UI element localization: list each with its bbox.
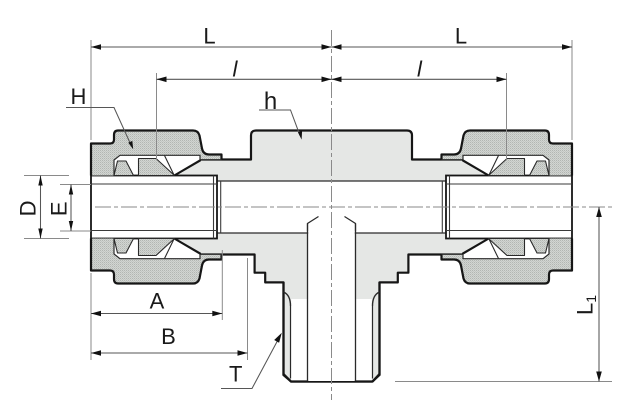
svg-text:L: L: [203, 24, 215, 49]
svg-text:D: D: [15, 200, 40, 216]
svg-text:h: h: [264, 88, 277, 115]
svg-text:B: B: [161, 324, 176, 349]
svg-text:H: H: [71, 84, 87, 109]
svg-text:A: A: [150, 289, 165, 314]
svg-text:E: E: [46, 201, 71, 216]
svg-text:L: L: [455, 24, 467, 49]
svg-text:T: T: [229, 362, 242, 387]
